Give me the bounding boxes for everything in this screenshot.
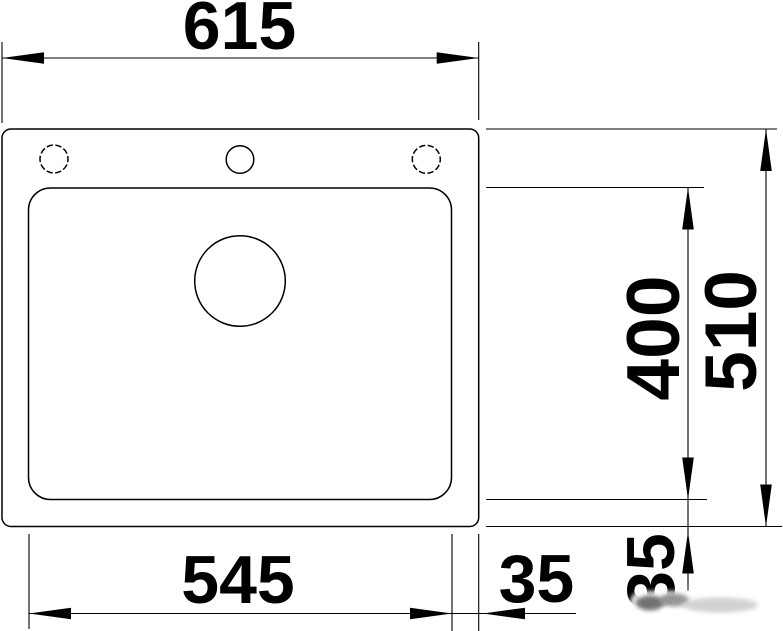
svg-text:510: 510 <box>691 270 772 392</box>
svg-text:545: 545 <box>181 542 294 618</box>
svg-text:400: 400 <box>611 275 695 400</box>
svg-text:35: 35 <box>499 541 575 617</box>
svg-text:615: 615 <box>183 0 296 64</box>
